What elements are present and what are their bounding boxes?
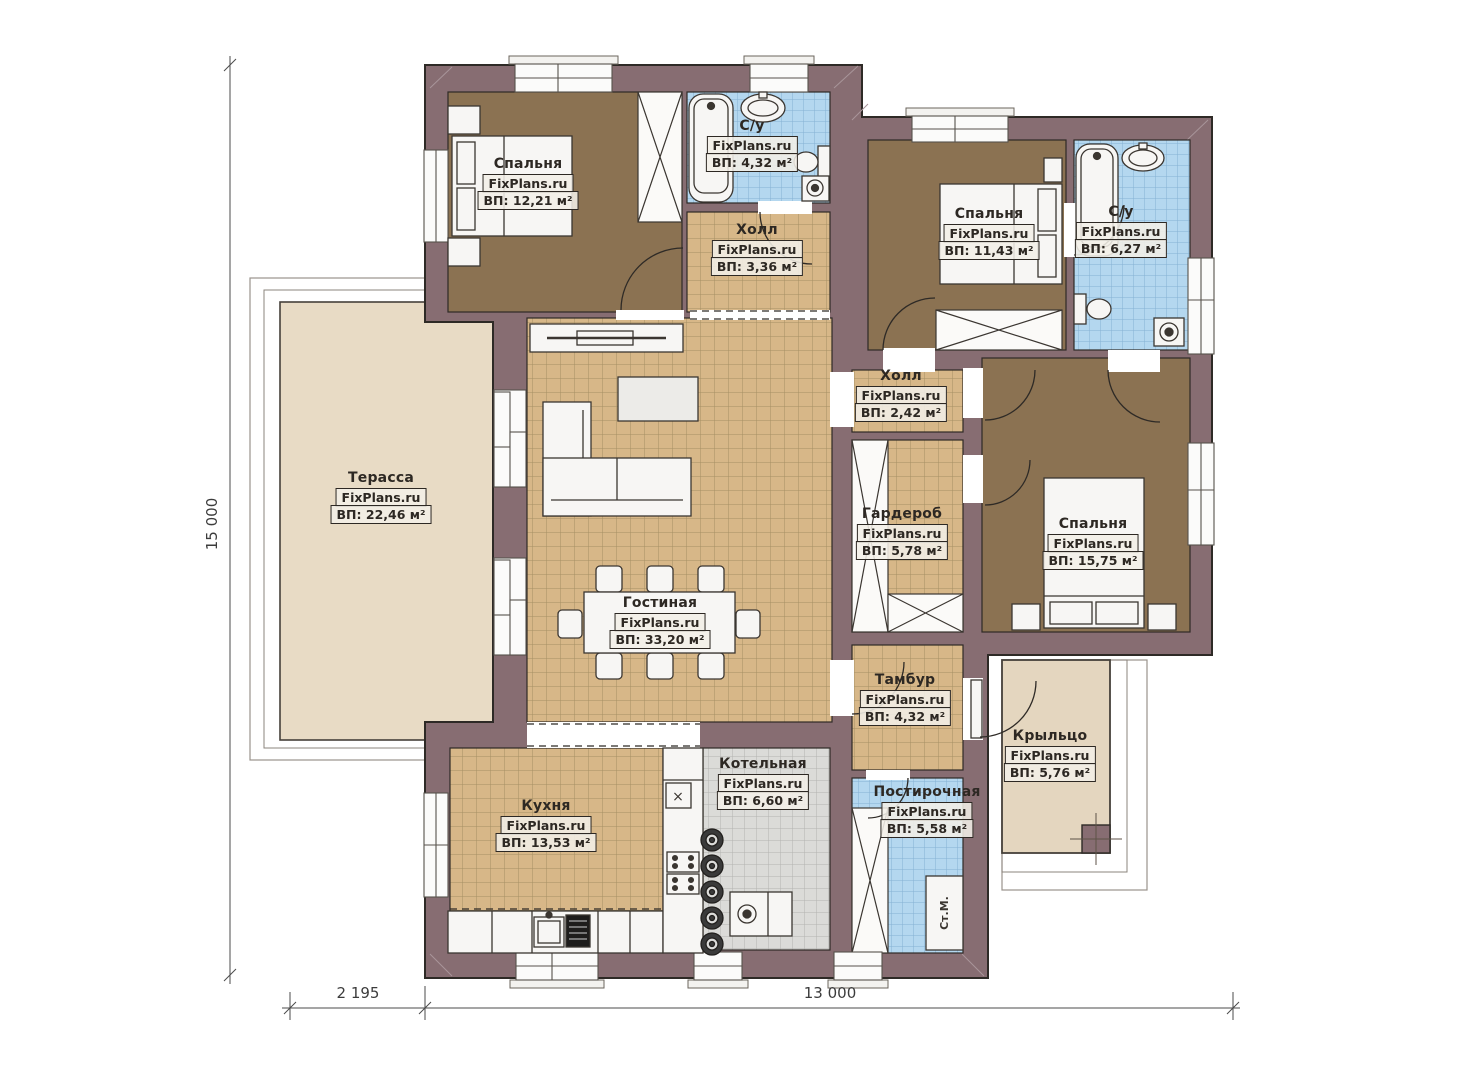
washing-machine-label: Ст.М. [938,896,951,930]
watermark: FixPlans.ru [501,816,592,835]
window-icon [424,150,448,242]
room-area: ВП: 6,60 м² [717,791,809,810]
room-label-boiler: Котельная FixPlans.ru ВП: 6,60 м² [717,756,809,810]
room-label-laundry: Постирочная FixPlans.ru ВП: 5,58 м² [873,784,980,838]
room-label-bath1: С/у FixPlans.ru ВП: 4,32 м² [706,118,798,172]
watermark: FixPlans.ru [615,613,706,632]
room-name: Тамбур [875,672,936,688]
room-label-wardrobe: Гардероб FixPlans.ru ВП: 5,78 м² [856,506,948,560]
room-name: Холл [880,368,922,384]
room-name: С/у [1108,204,1133,220]
kitchen-sink-icon [534,912,564,947]
closet-icon [888,594,963,632]
watermark: FixPlans.ru [944,224,1035,243]
watermark: FixPlans.ru [1048,534,1139,553]
room-label-bedroom1: Спальня FixPlans.ru ВП: 12,21 м² [478,156,579,210]
watermark: FixPlans.ru [707,136,798,155]
stove-column [663,748,703,953]
room-area: ВП: 4,32 м² [859,707,951,726]
watermark: FixPlans.ru [718,774,809,793]
room-area: ВП: 15,75 м² [1043,551,1144,570]
room-name: С/у [739,118,764,134]
room-name: Постирочная [873,784,980,800]
room-name: Терасса [348,470,414,486]
room-area: ВП: 12,21 м² [478,191,579,210]
closet-icon [638,92,682,222]
watermark: FixPlans.ru [856,386,947,405]
watermark: FixPlans.ru [336,488,427,507]
room-area: ВП: 5,76 м² [1004,763,1096,782]
room-name: Спальня [955,206,1024,222]
window-icon [515,64,612,92]
watermark: FixPlans.ru [483,174,574,193]
room-label-porch: Крыльцо FixPlans.ru ВП: 5,76 м² [1004,728,1096,782]
tv-console [530,324,683,352]
room-name: Кухня [521,798,570,814]
coffee-table [618,377,698,421]
window-icon [834,952,882,980]
room-label-bath2: С/у FixPlans.ru ВП: 6,27 м² [1075,204,1167,258]
washing-machine-icon [1154,318,1184,346]
room-area: ВП: 6,27 м² [1075,239,1167,258]
room-area: ВП: 22,46 м² [331,505,432,524]
terrace-door-icon [494,558,526,655]
window-icon [694,952,742,980]
room-area: ВП: 33,20 м² [610,630,711,649]
watermark: FixPlans.ru [1005,746,1096,765]
room-area: ВП: 5,78 м² [856,541,948,560]
watermark: FixPlans.ru [857,524,948,543]
watermark: FixPlans.ru [860,690,951,709]
dimension-left: 15 000 [203,498,221,551]
room-label-living: Гостиная FixPlans.ru ВП: 33,20 м² [610,595,711,649]
dish-rack-icon [566,915,590,947]
watermark: FixPlans.ru [712,240,803,259]
room-area: ВП: 4,32 м² [706,153,798,172]
room-label-hall2: Холл FixPlans.ru ВП: 2,42 м² [855,368,947,422]
window-icon [912,116,1008,142]
room-area: ВП: 2,42 м² [855,403,947,422]
room-name: Спальня [494,156,563,172]
kitchen-marker: × [672,789,684,805]
window-icon [424,793,448,897]
door-leaf [971,680,982,738]
room-label-bedroom2: Спальня FixPlans.ru ВП: 11,43 м² [939,206,1040,260]
terrace-door-icon [494,390,526,487]
window-icon [1188,443,1214,545]
room-area: ВП: 13,53 м² [496,833,597,852]
closet-icon [936,310,1062,350]
floor-plan-page: Ст.М. × Спальня FixPlans.ru ВП: 12,21 м²… [0,0,1473,1080]
room-label-hall1: Холл FixPlans.ru ВП: 3,36 м² [711,222,803,276]
kitchen-counter [448,911,663,953]
window-icon [516,952,598,980]
room-name: Холл [736,222,778,238]
boiler-pipes-icon [701,829,723,955]
window-icon [1188,258,1214,354]
room-area: ВП: 3,36 м² [711,257,803,276]
room-label-bedroom3: Спальня FixPlans.ru ВП: 15,75 м² [1043,516,1144,570]
dimension-bottom-right: 13 000 [804,984,857,1002]
watermark: FixPlans.ru [882,802,973,821]
room-area: ВП: 11,43 м² [939,241,1040,260]
dimension-bottom-left: 2 195 [337,984,380,1002]
room-area: ВП: 5,58 м² [881,819,973,838]
room-label-kitchen: Кухня FixPlans.ru ВП: 13,53 м² [496,798,597,852]
watermark: FixPlans.ru [1076,222,1167,241]
room-name: Гостиная [623,595,697,611]
room-name: Спальня [1059,516,1128,532]
room-name: Крыльцо [1013,728,1088,744]
room-label-tambur: Тамбур FixPlans.ru ВП: 4,32 м² [859,672,951,726]
boiler-unit-icon [730,892,792,936]
room-name: Котельная [719,756,807,772]
room-name: Гардероб [862,506,942,522]
washing-machine-icon [802,176,829,201]
window-icon [750,64,808,92]
room-label-terrace: Терасса FixPlans.ru ВП: 22,46 м² [331,470,432,524]
